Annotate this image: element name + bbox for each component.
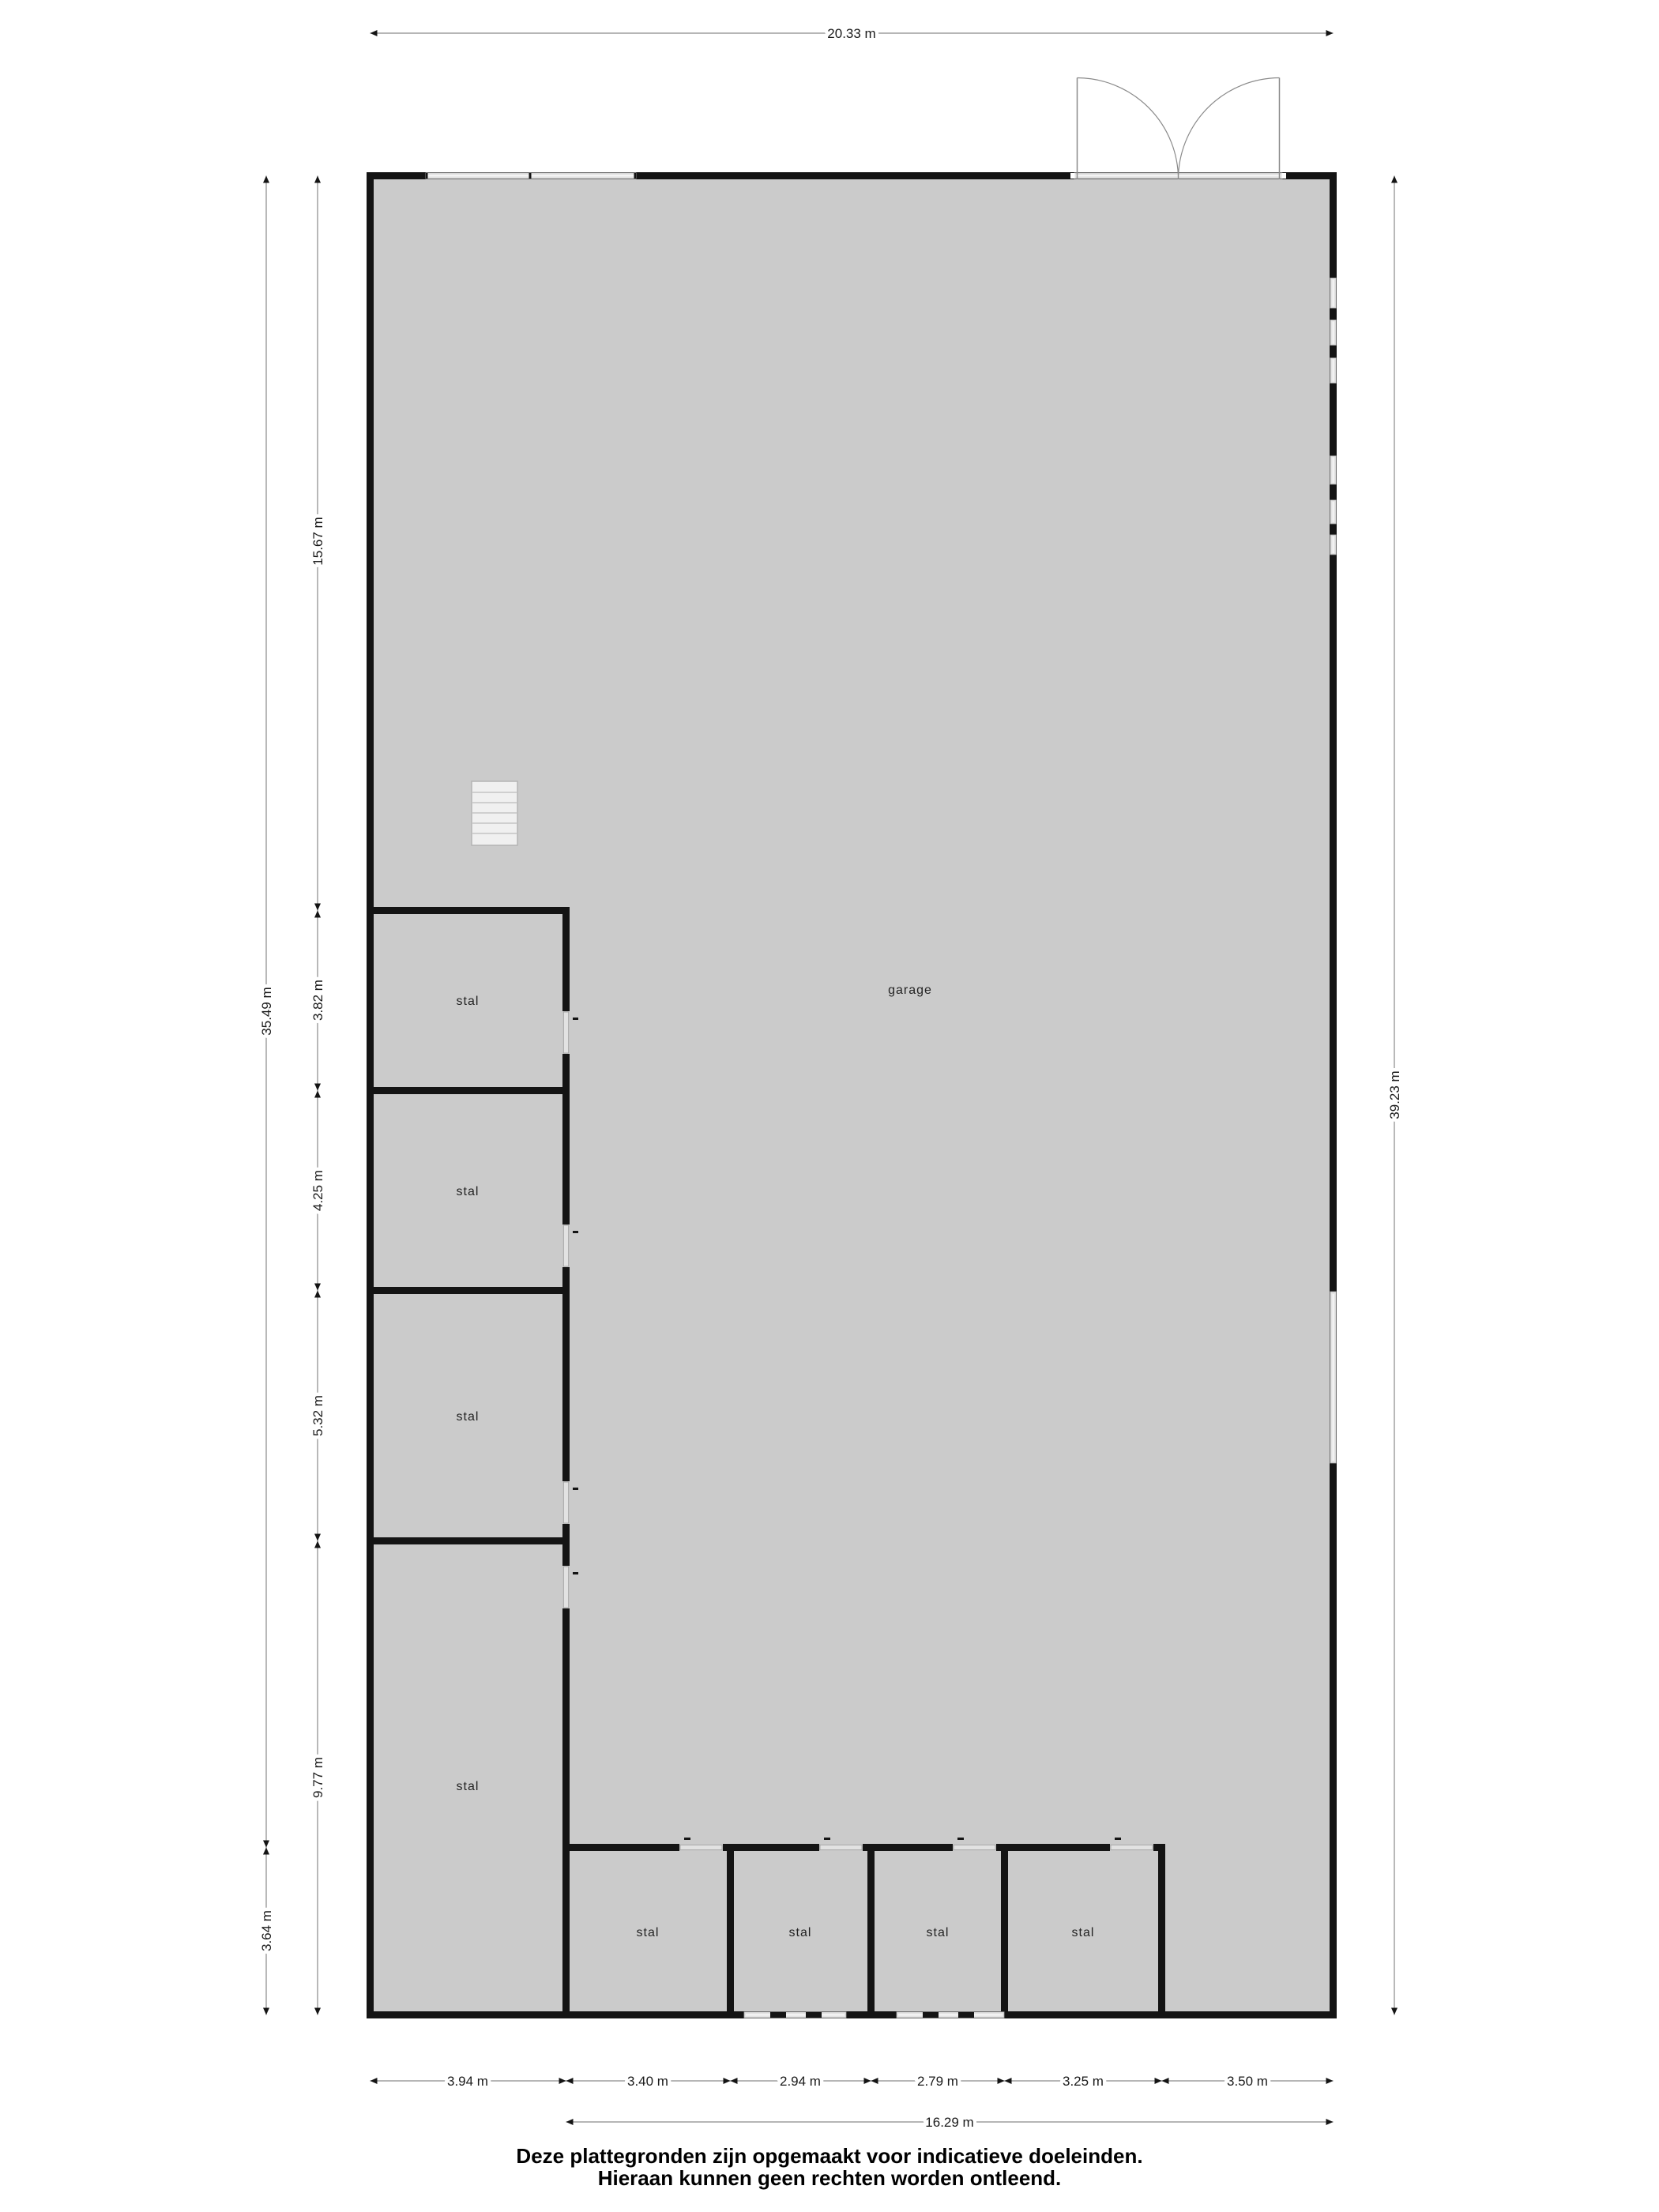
dim-label: 2.79 m [917,2074,958,2089]
door-panel [954,1845,995,1849]
room-label-stal: stal [457,1185,480,1198]
door-tick [684,1838,690,1840]
dim-label: 2.94 m [780,2074,821,2089]
footer-disclaimer-line1: Deze plattegronden zijn opgemaakt voor i… [516,2144,1142,2168]
window-divider [770,2012,786,2018]
dim-label: 39.23 m [1387,1070,1402,1119]
room-label-stal: stal [927,1926,950,1939]
window-divider [923,2012,939,2018]
room-label-stal: stal [457,1780,480,1793]
dim-label: 16.29 m [925,2115,973,2130]
room-label-stal: stal [457,1410,480,1424]
door-tick [573,1231,578,1233]
door-panel [563,1012,568,1053]
dim-label: 20.33 m [827,26,875,41]
room-label-stal: stal [1072,1926,1095,1939]
dim-label: 3.94 m [447,2074,488,2089]
door-panel [1111,1845,1153,1849]
outer-wall-bottom [367,2011,1337,2018]
floor-plan-canvas: garage stal stal stal stal stal stal sta… [0,0,1659,2212]
inner-wall-bottom-v1 [727,1844,734,2018]
window-end [634,173,637,179]
door-panel [820,1845,862,1849]
inner-wall-bottom-v2 [867,1844,875,2018]
inner-wall-stal2-stal3 [367,1287,570,1294]
dim-label: 3.25 m [1063,2074,1104,2089]
inner-wall-stal3-stal4 [367,1537,570,1544]
window-end [426,173,428,179]
door-panel [680,1845,722,1849]
stairs-icon [472,781,517,845]
door-hinge-block [1282,173,1287,179]
building [367,172,1337,2018]
door-panel [563,1482,568,1523]
room-label-stal: stal [637,1926,660,1939]
garage-floor [367,172,1337,2018]
door-panel [563,1225,568,1266]
dim-label: 3.64 m [259,1910,274,1951]
room-label-stal: stal [457,995,480,1008]
dim-label: 35.49 m [259,987,274,1035]
door-swing-arc [1179,78,1280,180]
dim-label: 9.77 m [310,1757,325,1798]
inner-wall-stal1-top [367,907,570,914]
dim-label: 5.32 m [310,1395,325,1436]
window-divider [806,2012,822,2018]
dim-label: 3.40 m [627,2074,668,2089]
inner-wall-bottom-row-top [562,1844,1165,1851]
door-swing-arc [1078,78,1179,180]
outer-wall-left [367,172,374,2018]
window-divider [958,2012,974,2018]
outer-wall-right [1330,172,1337,2018]
footer-disclaimer-line2: Hieraan kunnen geen rechten worden ontle… [598,2166,1062,2190]
room-label-stal: stal [789,1926,812,1939]
door-hinge-block [1070,173,1075,179]
inner-wall-left-column [562,907,570,2018]
door-tick [573,1488,578,1490]
inner-wall-bottom-v4 [1158,1844,1165,2018]
room-label-garage: garage [888,984,932,997]
dim-label: 15.67 m [310,517,325,565]
door-tick [1115,1838,1121,1840]
footer: Deze plattegronden zijn opgemaakt voor i… [516,2144,1142,2190]
window-divider [529,173,532,179]
door-tick [573,1018,578,1020]
door-panel [563,1567,568,1608]
inner-wall-stal1-stal2 [367,1087,570,1094]
inner-wall-bottom-v3 [1001,1844,1008,2018]
door-tick [824,1838,830,1840]
dim-label: 3.50 m [1227,2074,1268,2089]
door-tick [957,1838,964,1840]
door-tick [573,1572,578,1574]
dim-label: 4.25 m [310,1170,325,1211]
dim-label: 3.82 m [310,980,325,1021]
